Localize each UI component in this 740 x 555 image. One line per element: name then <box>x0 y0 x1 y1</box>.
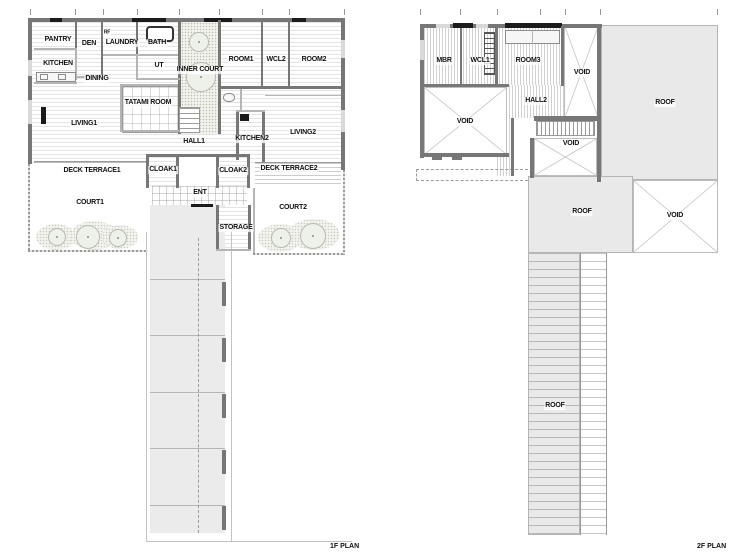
dimension-tick <box>717 9 718 15</box>
room-label-living2: LIVING2 <box>289 129 317 137</box>
room-label-room3: ROOM3 <box>515 57 542 65</box>
wall-segment <box>288 22 290 86</box>
ent-upper-area <box>179 157 216 186</box>
wall-segment <box>452 157 462 160</box>
room-label-ent: ENT <box>192 189 207 197</box>
wall-segment <box>34 48 77 50</box>
path-joint <box>150 279 225 280</box>
tree-icon <box>48 228 66 246</box>
dimension-tick <box>600 9 601 15</box>
room-label-bath: BATH <box>147 39 167 47</box>
roof-walkway <box>528 253 580 535</box>
wall-segment <box>511 118 514 176</box>
room-label-pantry: PANTRY <box>44 36 73 44</box>
wall-segment <box>532 30 533 44</box>
path-joint <box>150 448 225 449</box>
room-label-inner-court: INNER COURT <box>176 66 224 74</box>
stove <box>58 74 66 80</box>
entry-porch <box>150 205 225 232</box>
wall-segment <box>34 82 77 84</box>
wall-segment <box>597 116 601 182</box>
window-frame <box>50 18 62 22</box>
room-label-hall2: HALL2 <box>524 97 548 105</box>
room-label-deck-terrace1: DECK TERRACE1 <box>63 167 122 175</box>
wall-segment <box>597 24 601 120</box>
room-label-room2: ROOM2 <box>301 56 328 64</box>
room-label-deck-terrace2: DECK TERRACE2 <box>260 165 319 173</box>
site-wall <box>253 253 345 255</box>
wall-segment <box>136 78 180 80</box>
wall-segment <box>216 249 251 251</box>
room-label-roof-center: ROOF <box>571 208 592 216</box>
room-label-rf: RF <box>103 30 111 36</box>
dimension-tick <box>179 9 180 15</box>
room-label-dining: DINING <box>84 75 109 83</box>
wall-segment <box>218 20 221 134</box>
room-label-laundry: LAUNDRY <box>105 39 140 47</box>
wall-segment <box>240 89 242 111</box>
room-label-tatami: TATAMI ROOM <box>124 99 172 107</box>
tree-icon <box>109 229 127 247</box>
room-label-kitchen: KITCHEN <box>42 60 74 68</box>
path-joint <box>150 392 225 393</box>
wall-segment <box>432 157 442 160</box>
window-frame <box>453 23 473 28</box>
sink <box>40 74 48 80</box>
dimension-tick <box>289 9 290 15</box>
eave-line <box>416 169 418 181</box>
tree-icon <box>189 32 209 52</box>
wall-segment <box>120 130 180 132</box>
wall-segment <box>103 54 178 56</box>
dimension-tick <box>137 9 138 15</box>
wall-segment <box>136 54 138 80</box>
dimension-tick <box>75 9 76 15</box>
wall-segment <box>530 138 534 178</box>
wall-segment <box>120 84 178 86</box>
room-label-hall1: HALL1 <box>182 138 206 146</box>
staircase-2f <box>536 121 595 136</box>
window-gap <box>420 40 424 60</box>
window-gap <box>28 100 32 124</box>
path-joint <box>150 505 225 506</box>
room-label-ut: UT <box>154 62 165 70</box>
entrance-door <box>191 204 213 207</box>
window-gap <box>28 60 32 76</box>
dimension-tick <box>103 9 104 15</box>
approach-path <box>150 232 225 533</box>
dimension-tick <box>344 9 345 15</box>
eave-line <box>416 180 528 182</box>
room-label-wcl2: WCL2 <box>265 56 286 64</box>
window-gap <box>436 24 450 28</box>
dimension-tick <box>30 9 31 15</box>
wall-segment <box>28 18 32 164</box>
dimension-tick <box>420 9 421 15</box>
window-gap <box>476 24 488 28</box>
dimension-tick <box>497 9 498 15</box>
room-label-court2: COURT2 <box>278 204 308 212</box>
room-label-living1: LIVING1 <box>70 120 98 128</box>
room-label-cloak1: CLOAK1 <box>148 166 178 174</box>
window-frame <box>505 23 562 28</box>
room-label-storage: STORAGE <box>218 224 253 232</box>
room-label-room1: ROOM1 <box>228 56 255 64</box>
wall-segment <box>236 110 265 112</box>
room-label-wcl1: WCL1 <box>469 57 490 65</box>
dimension-tick <box>540 9 541 15</box>
site-line <box>146 541 352 542</box>
staircase-1f <box>179 107 200 133</box>
room-label-court1: COURT1 <box>75 199 105 207</box>
wall-segment <box>561 26 564 86</box>
wall-segment <box>220 86 345 89</box>
kitchen2-counter <box>240 114 249 121</box>
site-wall <box>28 164 30 252</box>
site-line <box>146 232 147 541</box>
site-line <box>231 232 232 541</box>
plan-title-1f: 1F PLAN <box>330 543 359 550</box>
tv-board <box>41 107 46 124</box>
dimension-tick <box>262 9 263 15</box>
wall-segment <box>265 95 341 96</box>
wall-segment <box>460 28 462 84</box>
pergola-strip <box>580 253 607 535</box>
floor-plan-2f: MBR WCL1 ROOM3 VOID HALL2 VOID VOID ROOF… <box>370 0 740 555</box>
wall-segment <box>495 28 498 86</box>
room-label-mbr: MBR <box>435 57 452 65</box>
dimension-tick <box>219 9 220 15</box>
site-wall <box>343 170 345 255</box>
window-gap <box>341 110 345 132</box>
room-label-void-left: VOID <box>456 118 474 126</box>
tree-icon <box>300 223 326 249</box>
tree-icon <box>76 225 100 249</box>
dimension-tick <box>460 9 461 15</box>
wall-segment <box>120 84 122 132</box>
wall-segment <box>261 22 263 86</box>
plan-title-2f: 2F PLAN <box>697 543 726 550</box>
canopy-eave-line <box>198 238 200 533</box>
room-label-cloak2: CLOAK2 <box>218 167 248 175</box>
room-label-roof-walk: ROOF <box>544 402 565 410</box>
wall-segment <box>253 188 255 254</box>
wall-segment <box>222 338 226 362</box>
wall-segment <box>222 506 226 530</box>
room-label-kitchen2: KITCHEN2 <box>234 135 269 143</box>
path-joint <box>150 335 225 336</box>
room-label-void-se: VOID <box>666 212 684 220</box>
site-wall <box>28 250 148 252</box>
room-label-void-center: VOID <box>562 140 580 148</box>
floorplan-sheet: PANTRY DEN RF LAUNDRY BATH KITCHEN UT IN… <box>0 0 740 555</box>
room-label-den: DEN <box>81 40 97 48</box>
room-label-void-right: VOID <box>573 69 591 77</box>
tree-icon <box>271 228 291 248</box>
window-frame <box>292 18 306 22</box>
toilet <box>223 93 235 102</box>
wall-segment <box>222 450 226 474</box>
wall-segment <box>222 282 226 306</box>
wall-segment <box>75 22 77 50</box>
window-gap <box>341 40 345 58</box>
wcl1-closet <box>484 32 495 75</box>
dimension-tick <box>565 9 566 15</box>
floor-plan-1f: PANTRY DEN RF LAUNDRY BATH KITCHEN UT IN… <box>0 0 370 555</box>
wall-segment <box>222 394 226 418</box>
room-label-roof-main: ROOF <box>654 99 675 107</box>
wall-segment <box>146 154 250 157</box>
tatami-floor <box>122 86 180 133</box>
